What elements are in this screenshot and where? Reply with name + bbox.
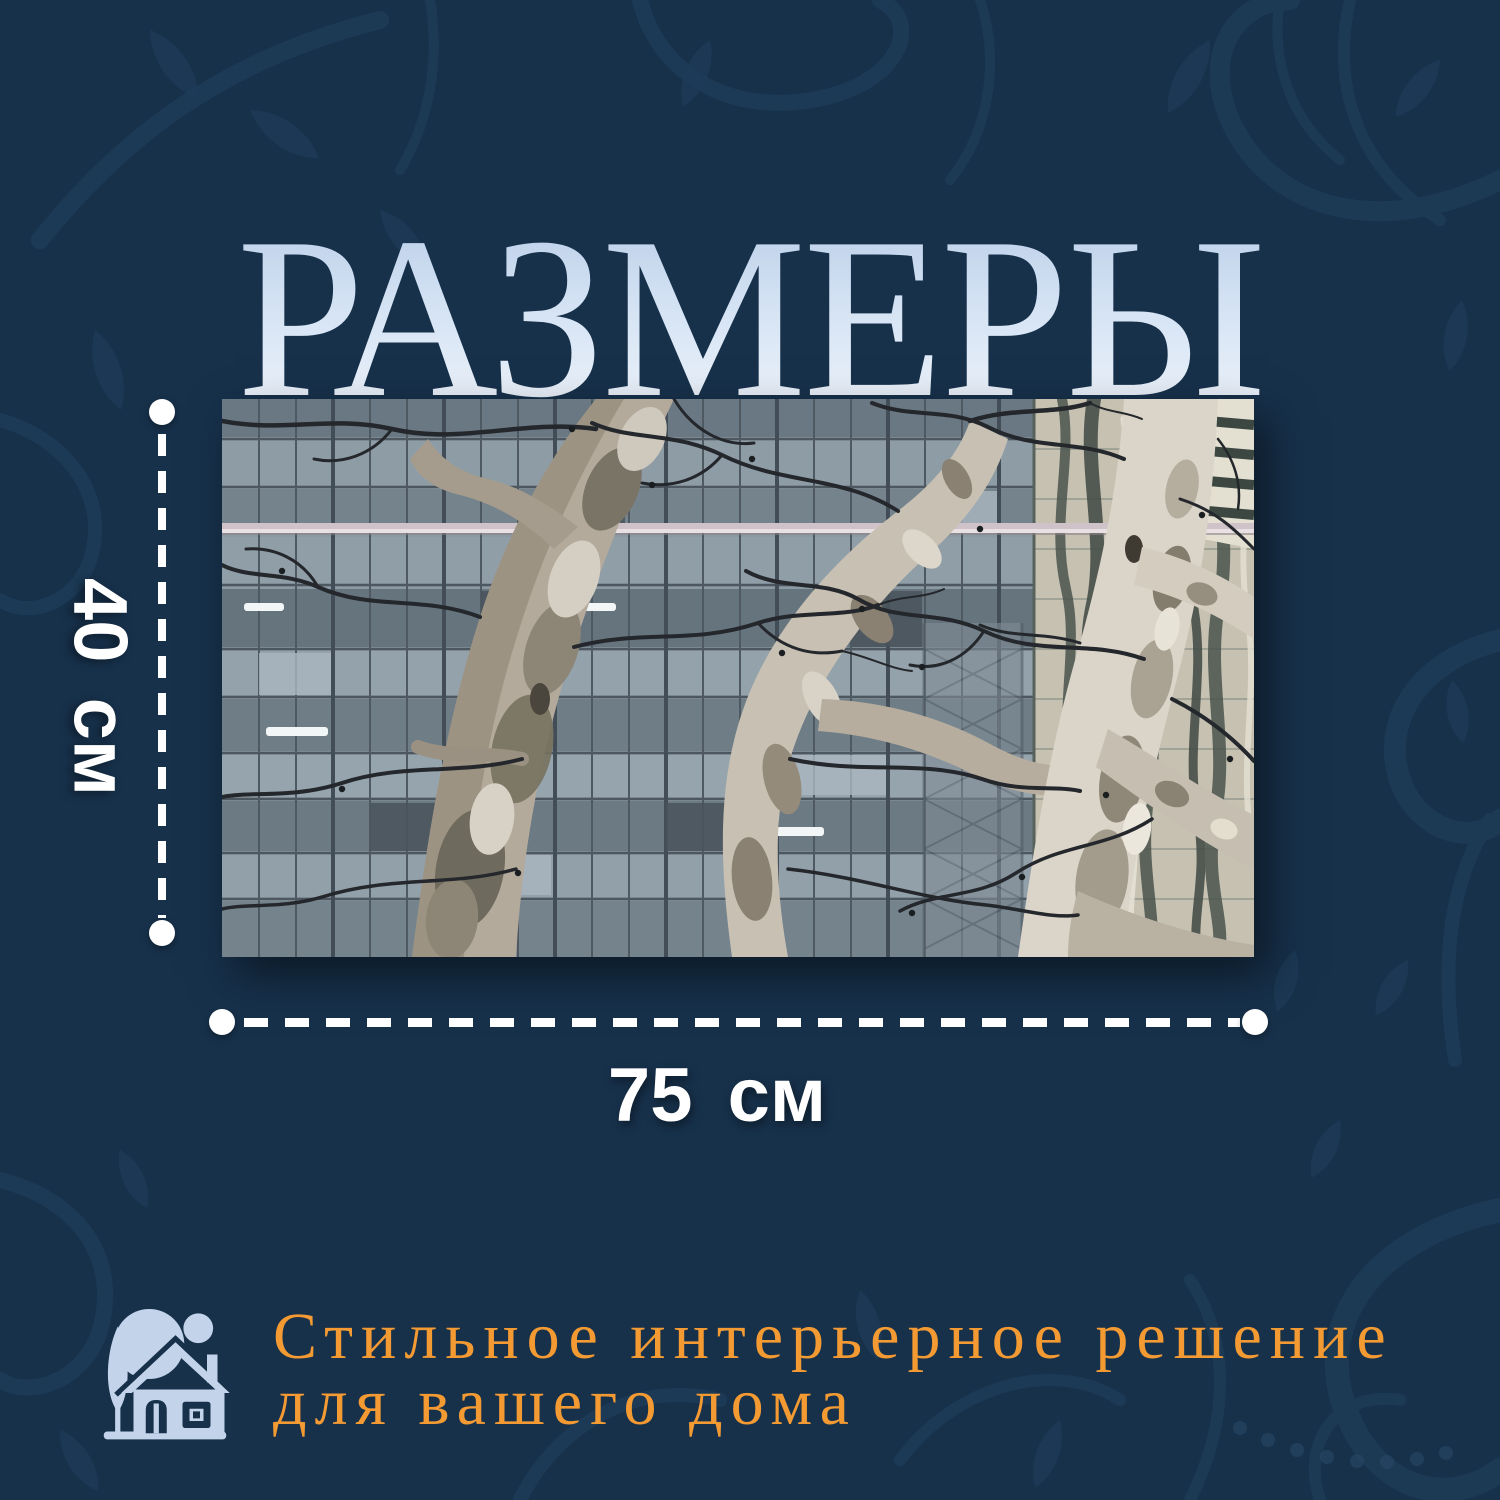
tagline-line-1: Стильное интерьерное решение: [273, 1304, 1394, 1370]
height-line-bottom-dot: [149, 920, 175, 946]
house-icon: [95, 1298, 235, 1446]
footer: Стильное интерьерное решение для вашего …: [95, 1292, 1394, 1446]
width-line-left-dot: [209, 1009, 235, 1035]
width-line-right-dot: [1242, 1009, 1268, 1035]
tagline-line-2: для вашего дома: [273, 1370, 1394, 1436]
width-dimension-label: 75 см: [217, 1052, 1217, 1139]
width-dimension-line: [244, 1018, 1240, 1027]
tagline: Стильное интерьерное решение для вашего …: [273, 1292, 1394, 1436]
height-dimension-label: 40 см: [57, 578, 144, 796]
page-title: РАЗМЕРЫ: [0, 154, 1500, 430]
artwork-svg: [222, 399, 1254, 957]
canvas-print-photo: [222, 399, 1254, 957]
height-line-top-dot: [149, 399, 175, 425]
product-infographic: РАЗМЕРЫ: [0, 0, 1500, 1500]
pink-band: [222, 523, 1254, 535]
height-dimension-line: [158, 434, 166, 918]
